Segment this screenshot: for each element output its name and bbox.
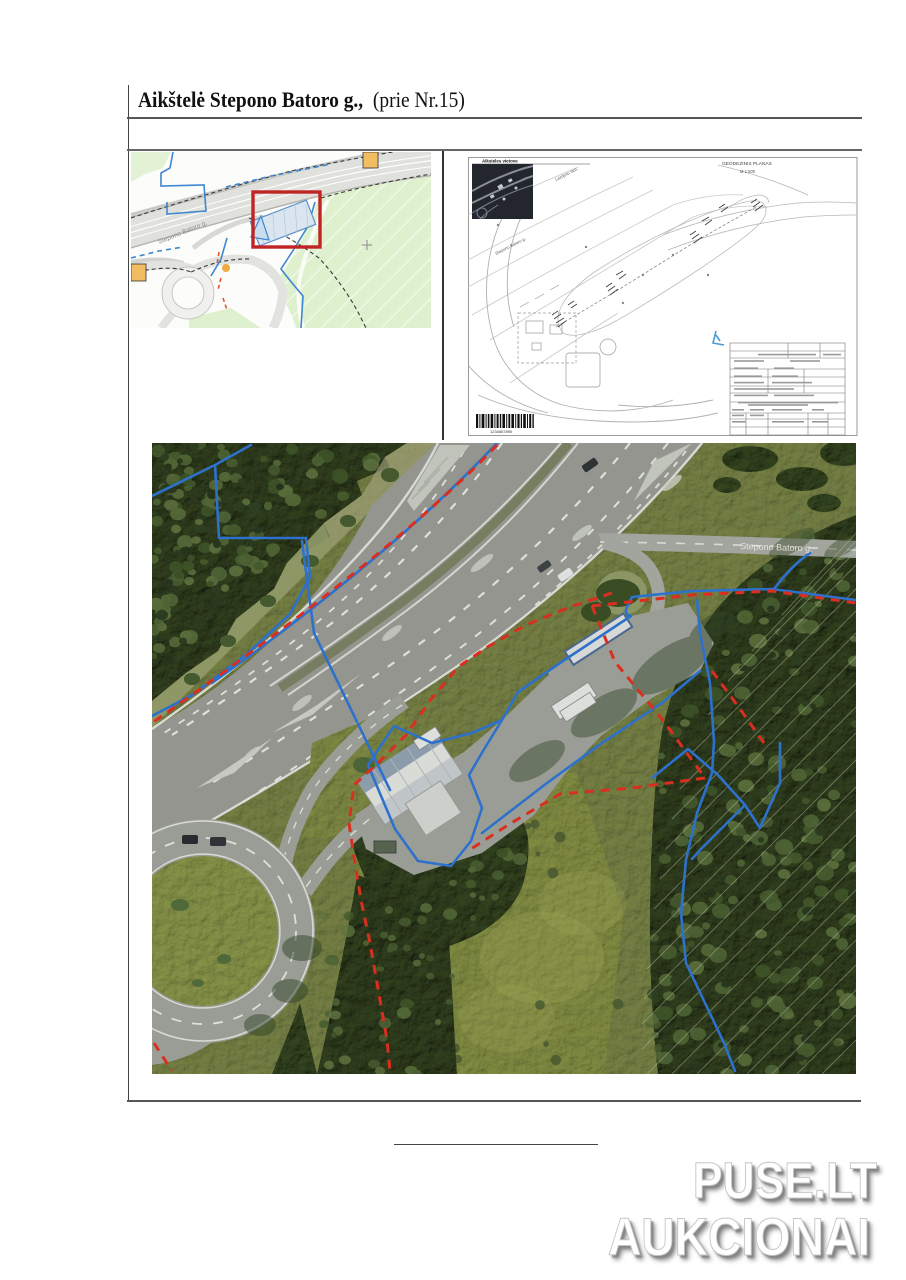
svg-text:Aiksteles vietove: Aiksteles vietove [482, 159, 518, 164]
svg-text:M 1:500: M 1:500 [740, 169, 756, 174]
svg-text:GEODEZINIS PLANAS: GEODEZINIS PLANAS [722, 161, 772, 167]
svg-text:1234567890: 1234567890 [490, 429, 513, 434]
